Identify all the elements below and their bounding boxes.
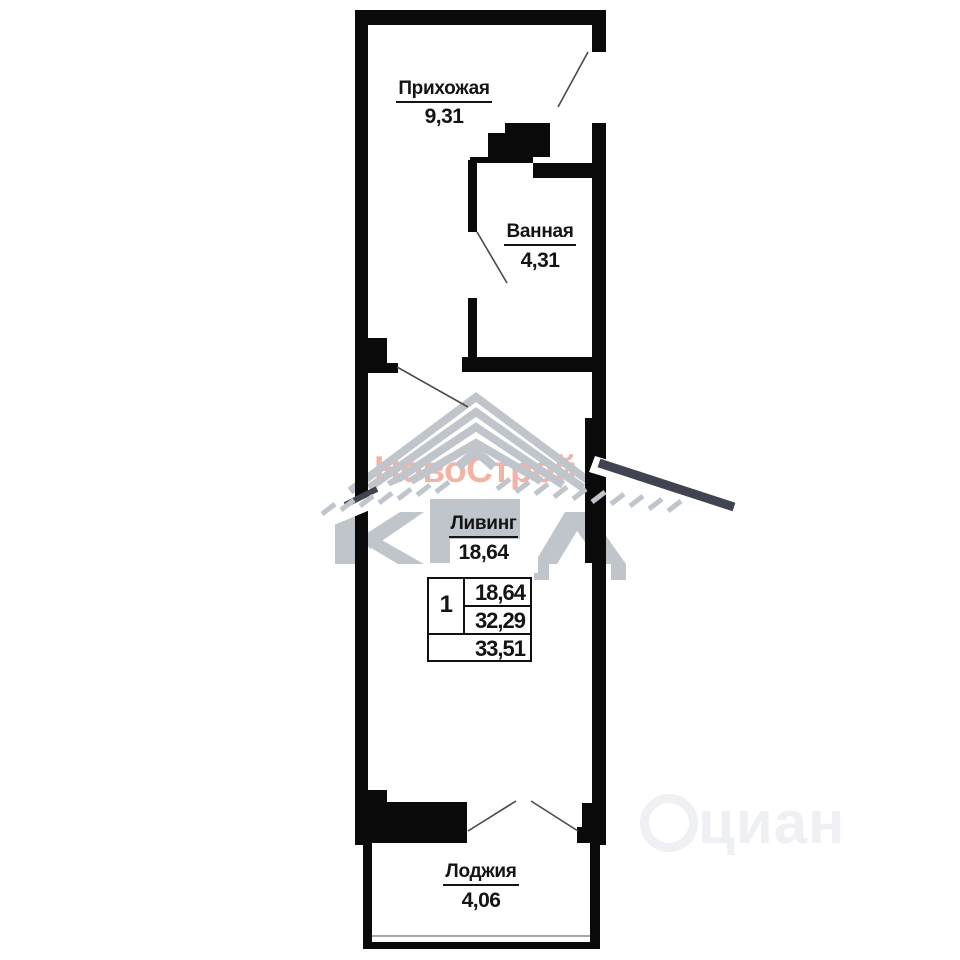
- logo-eaves-layer: [0, 0, 960, 960]
- eave-hatch-left: [322, 482, 449, 514]
- floor-plan-canvas: циан НовоСтрой: [0, 0, 960, 960]
